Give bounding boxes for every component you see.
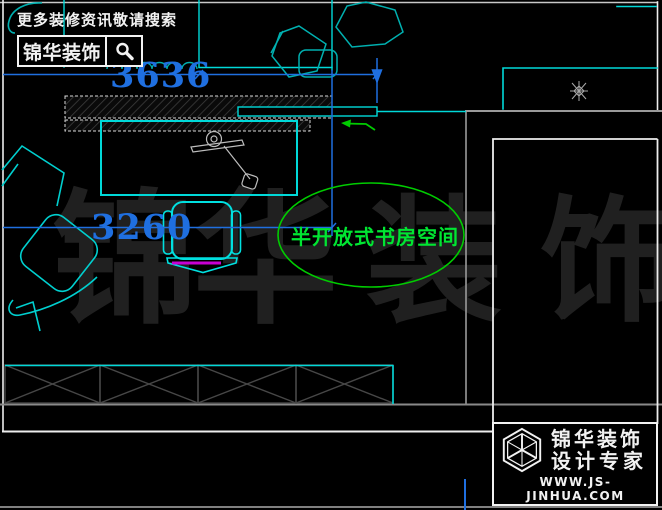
lounge-chair — [2, 146, 103, 331]
brand-subtitle: 设计专家 — [551, 450, 647, 472]
search-brand-label: 锦华装饰 — [19, 38, 105, 65]
cabinet-run — [5, 365, 393, 404]
plant-decor — [271, 2, 403, 77]
shelf-counter — [238, 107, 377, 116]
search-button[interactable] — [105, 37, 141, 65]
search-box[interactable]: 锦华装饰 — [17, 35, 143, 67]
dimension-value-left: 3260 — [91, 210, 192, 245]
annotation-callout — [278, 120, 464, 288]
desk — [101, 121, 297, 195]
star-ornament-icon — [570, 81, 588, 101]
search-banner: 更多装修资讯敬请搜索 锦华装饰 — [17, 9, 177, 67]
cube-wireframe-icon — [499, 427, 545, 473]
desk-lamp-icon — [191, 132, 259, 190]
hatched-cabinet — [65, 96, 466, 131]
inner-room-walls — [493, 139, 658, 431]
down-arrow-marker — [373, 70, 382, 82]
brand-website: WWW.JS-JINHUA.COM — [499, 475, 652, 503]
brand-text: 锦华装饰 设计专家 — [551, 428, 647, 472]
brand-card: 锦华装饰 设计专家 WWW.JS-JINHUA.COM — [492, 422, 658, 506]
cad-floorplan-screenshot: { "search_banner": { "tagline": "更多装修资讯敬… — [0, 0, 662, 510]
leader-arrowhead — [341, 120, 351, 128]
search-tagline: 更多装修资讯敬请搜索 — [17, 9, 177, 30]
room-annotation-label: 半开放式书房空间 — [291, 221, 459, 250]
brand-name: 锦华装饰 — [551, 428, 647, 450]
search-icon — [114, 41, 134, 61]
